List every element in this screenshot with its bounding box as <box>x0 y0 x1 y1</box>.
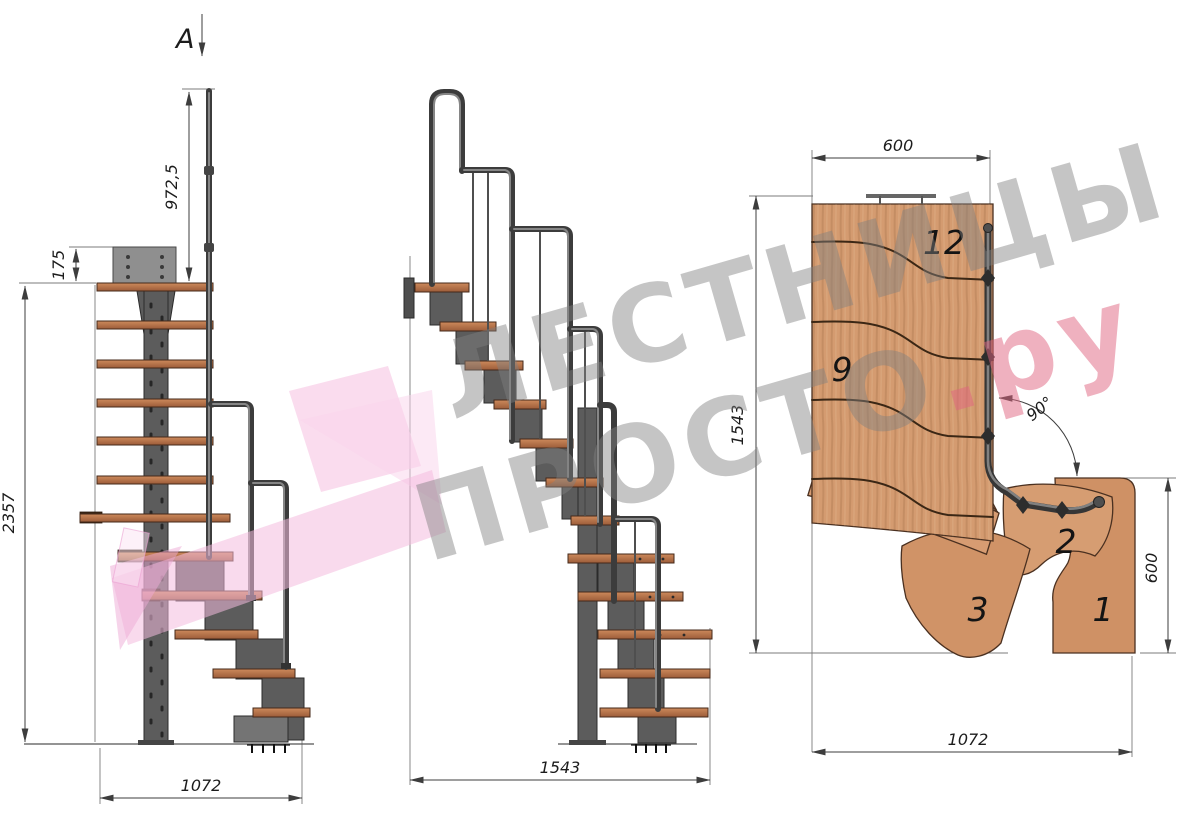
front-dimensions: 1543 <box>410 758 710 780</box>
wall-bracket <box>404 278 414 318</box>
dim-total-height: 2357 <box>0 492 18 534</box>
anchor-bolts <box>247 744 290 753</box>
dim-plate-offset: 175 <box>49 250 68 281</box>
step-number-3: 3 <box>968 590 989 629</box>
dim-plan-length: 1072 <box>948 730 989 749</box>
dim-lower-flight-width: 600 <box>1142 553 1161 584</box>
dim-run-length: 1072 <box>181 776 222 795</box>
staircase-drawing: A 972,5 175 2357 1072 <box>0 0 1200 832</box>
step-number-2: 2 <box>1056 522 1077 561</box>
handrail-end-cap <box>1094 497 1105 508</box>
section-label: A <box>174 24 194 55</box>
technical-drawing-canvas: A 972,5 175 2357 1072 <box>0 0 1200 832</box>
mount-plate <box>113 247 176 283</box>
side-structure <box>80 247 310 753</box>
anchor-bolts <box>631 744 671 753</box>
dim-upper-flight-width: 600 <box>883 136 914 155</box>
side-elevation-view: A 972,5 175 2357 1072 <box>0 14 314 804</box>
step-number-1: 1 <box>1093 590 1114 629</box>
dim-handrail-height: 972,5 <box>162 164 181 210</box>
dim-front-width: 1543 <box>540 758 581 777</box>
